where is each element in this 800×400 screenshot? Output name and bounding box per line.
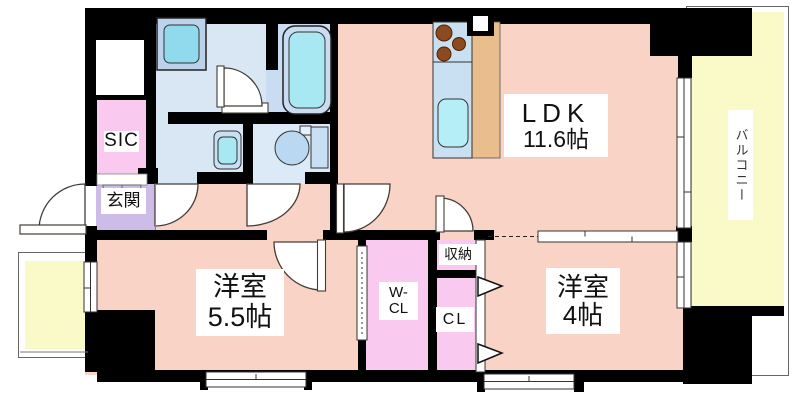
label-balcony: バルコニー [728,110,753,220]
wall-segment [197,172,247,184]
label-ldk: LDK 11.6帖 [504,94,608,157]
wall-segment [146,8,156,174]
entrance-door-icon [20,184,86,234]
window-post [200,370,208,390]
label-sic: SIC [99,128,144,155]
room-name: SIC [104,131,139,152]
label-closet: CL [436,307,474,332]
room-name: 収納 [444,247,472,262]
wall-segment [474,230,494,240]
wall-segment [305,172,338,184]
wall-segment [266,8,278,70]
wall-segment [428,240,437,372]
wall-segment [323,230,440,240]
label-walk-in-closet: W- CL [379,282,418,320]
label-bedroom-b: 洋室 4帖 [546,268,620,334]
wall-segment [676,226,692,242]
room-name: 玄関 [107,192,141,210]
wall-segment [85,8,690,24]
window-post [574,370,584,392]
room-name: 洋室 [213,273,267,302]
wall-segment [650,8,752,56]
wall-pillar [85,310,155,372]
room-name: CL [443,311,467,328]
floor-plan: LDK 11.6帖 洋室 5.5帖 洋室 4帖 玄関 SIC W- CL CL … [0,0,800,400]
label-entrance: 玄関 [101,188,146,214]
wall-segment [690,306,784,316]
pipe-space [96,40,144,95]
window-post [477,370,485,392]
window-post [304,370,312,390]
room-name: バルコニー [733,128,747,203]
room-name: LDK [522,99,591,127]
wall-segment [146,172,157,184]
wall-segment [168,112,334,124]
wall-segment [85,100,97,186]
room-size: 5.5帖 [208,303,273,332]
room-name: CL [389,301,408,317]
wall-segment [330,8,338,240]
label-bedroom-a: 洋室 5.5帖 [196,269,284,336]
label-storage: 収納 [439,244,477,265]
room-name: 洋室 [557,273,609,301]
wall-segment [437,270,484,278]
room-size: 4帖 [563,301,603,329]
room-alcove [25,261,85,349]
wall-segment [678,56,692,78]
room-name: W- [389,285,408,301]
room-size: 11.6帖 [523,127,589,152]
wall-segment [358,240,366,372]
wall-pillar [683,306,752,384]
wall-segment [85,230,267,240]
wall-segment [97,370,750,382]
